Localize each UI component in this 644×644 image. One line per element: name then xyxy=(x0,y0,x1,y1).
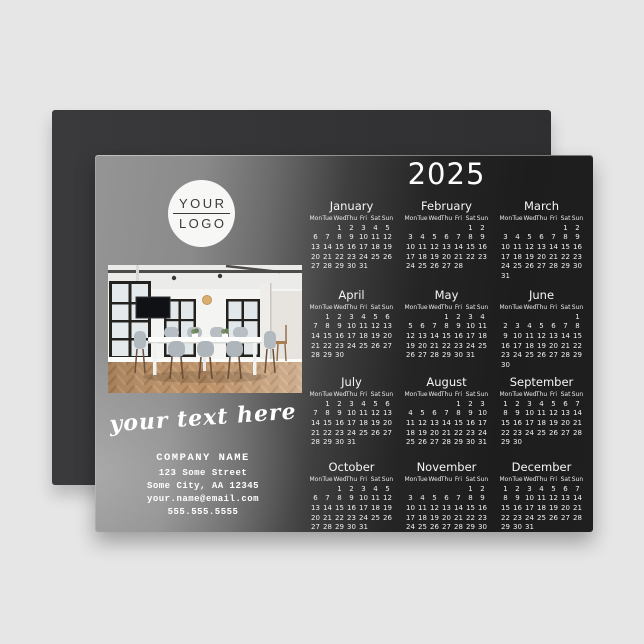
date-cell: 21 xyxy=(453,253,465,263)
date-cell: 29 xyxy=(334,262,346,272)
date-cell: 18 xyxy=(477,332,489,342)
date-cell: 23 xyxy=(334,342,346,352)
date-cell: 9 xyxy=(465,409,477,419)
date-cell: 18 xyxy=(536,504,548,514)
month-title: January xyxy=(310,200,394,213)
day-header: Sun xyxy=(477,390,489,400)
date-cell: 10 xyxy=(346,322,358,332)
date-cell: 6 xyxy=(382,313,394,323)
date-cell: 21 xyxy=(572,419,584,429)
date-cell: 3 xyxy=(346,313,358,323)
date-cell: 24 xyxy=(500,262,512,272)
date-cell: 30 xyxy=(512,438,524,448)
date-cell: 12 xyxy=(548,409,560,419)
date-cell: 11 xyxy=(358,322,370,332)
date-cell: 14 xyxy=(560,332,572,342)
day-header: Mon xyxy=(405,214,417,224)
day-header: Tue xyxy=(512,475,524,485)
date-cell: 1 xyxy=(453,400,465,410)
day-header: Mon xyxy=(310,475,322,485)
date-cell: 24 xyxy=(346,342,358,352)
month-september: SeptemberMonTueWedThuFriSatSun1234567891… xyxy=(494,376,589,461)
day-header: Wed xyxy=(524,475,536,485)
date-cell: 15 xyxy=(441,332,453,342)
date-cell: 8 xyxy=(441,322,453,332)
date-cell: 16 xyxy=(572,243,584,253)
date-cell: 30 xyxy=(512,523,524,533)
empty-cell xyxy=(524,313,536,323)
date-cell: 22 xyxy=(322,342,334,352)
date-cell: 25 xyxy=(370,514,382,524)
date-cell: 18 xyxy=(358,419,370,429)
day-header: Sun xyxy=(382,214,394,224)
date-cell: 5 xyxy=(382,224,394,234)
date-cell: 17 xyxy=(346,332,358,342)
date-cell: 16 xyxy=(512,504,524,514)
date-cell: 3 xyxy=(524,485,536,495)
date-cell: 10 xyxy=(477,409,489,419)
month-days: MonTueWedThuFriSatSun1234567891011121314… xyxy=(405,303,489,361)
date-cell: 27 xyxy=(441,262,453,272)
date-cell: 22 xyxy=(572,342,584,352)
date-cell: 17 xyxy=(405,514,417,524)
day-header: Fri xyxy=(453,475,465,485)
date-cell: 24 xyxy=(465,342,477,352)
date-cell: 10 xyxy=(524,409,536,419)
date-cell: 17 xyxy=(358,504,370,514)
product-mockup-background: YOUR LOGO xyxy=(0,0,644,644)
day-header: Sat xyxy=(465,303,477,313)
date-cell: 13 xyxy=(441,243,453,253)
year-title: 2025 xyxy=(304,157,589,191)
date-cell: 5 xyxy=(536,322,548,332)
date-cell: 2 xyxy=(477,485,489,495)
date-cell: 26 xyxy=(524,262,536,272)
date-cell: 17 xyxy=(358,243,370,253)
date-cell: 20 xyxy=(310,253,322,263)
date-cell: 2 xyxy=(512,400,524,410)
day-header: Sat xyxy=(560,475,572,485)
date-cell: 15 xyxy=(572,332,584,342)
date-cell: 7 xyxy=(572,400,584,410)
day-header: Thu xyxy=(441,214,453,224)
date-cell: 18 xyxy=(370,243,382,253)
day-header: Sun xyxy=(572,475,584,485)
tagline-script: your text here xyxy=(102,398,303,438)
date-cell: 4 xyxy=(358,400,370,410)
month-february: FebruaryMonTueWedThuFriSatSun12345678910… xyxy=(399,200,494,289)
date-cell: 5 xyxy=(548,485,560,495)
date-cell: 11 xyxy=(370,494,382,504)
date-cell: 9 xyxy=(572,233,584,243)
date-cell: 20 xyxy=(536,253,548,263)
date-cell: 15 xyxy=(500,504,512,514)
date-cell: 16 xyxy=(465,419,477,429)
date-cell: 6 xyxy=(429,409,441,419)
date-cell: 25 xyxy=(358,342,370,352)
date-cell: 19 xyxy=(548,419,560,429)
day-header: Tue xyxy=(512,214,524,224)
date-cell: 4 xyxy=(405,409,417,419)
date-cell: 10 xyxy=(346,409,358,419)
date-cell: 9 xyxy=(512,494,524,504)
date-cell: 11 xyxy=(417,504,429,514)
date-cell: 22 xyxy=(322,429,334,439)
date-cell: 28 xyxy=(310,351,322,361)
date-cell: 12 xyxy=(524,243,536,253)
date-cell: 11 xyxy=(524,332,536,342)
day-header: Fri xyxy=(548,303,560,313)
day-header: Fri xyxy=(548,475,560,485)
empty-cell xyxy=(405,224,417,234)
date-cell: 14 xyxy=(453,504,465,514)
empty-cell xyxy=(405,485,417,495)
date-cell: 14 xyxy=(572,494,584,504)
date-cell: 23 xyxy=(465,429,477,439)
date-cell: 19 xyxy=(429,514,441,524)
date-cell: 7 xyxy=(310,322,322,332)
date-cell: 19 xyxy=(417,429,429,439)
date-cell: 8 xyxy=(500,494,512,504)
date-cell: 6 xyxy=(310,233,322,243)
month-april: AprilMonTueWedThuFriSatSun12345678910111… xyxy=(304,289,399,376)
date-cell: 22 xyxy=(465,514,477,524)
date-cell: 10 xyxy=(405,243,417,253)
date-cell: 11 xyxy=(512,243,524,253)
date-cell: 23 xyxy=(453,342,465,352)
date-cell: 30 xyxy=(572,262,584,272)
month-title: July xyxy=(310,376,394,389)
day-header: Tue xyxy=(417,390,429,400)
date-cell: 21 xyxy=(310,429,322,439)
date-cell: 3 xyxy=(477,400,489,410)
date-cell: 1 xyxy=(322,400,334,410)
date-cell: 24 xyxy=(512,351,524,361)
day-header: Thu xyxy=(441,475,453,485)
date-cell: 18 xyxy=(512,253,524,263)
date-cell: 18 xyxy=(524,342,536,352)
date-cell: 19 xyxy=(429,253,441,263)
date-cell: 9 xyxy=(477,494,489,504)
date-cell: 7 xyxy=(572,485,584,495)
date-cell: 5 xyxy=(524,233,536,243)
date-cell: 5 xyxy=(382,485,394,495)
date-cell: 31 xyxy=(358,523,370,533)
month-june: JuneMonTueWedThuFriSatSun123456789101112… xyxy=(494,289,589,376)
date-cell: 25 xyxy=(417,523,429,533)
day-header: Wed xyxy=(429,475,441,485)
date-cell: 21 xyxy=(322,253,334,263)
date-cell: 13 xyxy=(382,322,394,332)
date-cell: 7 xyxy=(322,233,334,243)
empty-cell xyxy=(536,313,548,323)
date-cell: 26 xyxy=(370,429,382,439)
date-cell: 24 xyxy=(346,429,358,439)
date-cell: 18 xyxy=(405,429,417,439)
month-days: MonTueWedThuFriSatSun1234567891011121314… xyxy=(500,303,584,371)
date-cell: 4 xyxy=(358,313,370,323)
date-cell: 27 xyxy=(310,262,322,272)
date-cell: 18 xyxy=(358,332,370,342)
date-cell: 25 xyxy=(358,429,370,439)
date-cell: 9 xyxy=(500,332,512,342)
day-header: Fri xyxy=(358,475,370,485)
day-header: Wed xyxy=(334,475,346,485)
date-cell: 5 xyxy=(370,313,382,323)
date-cell: 15 xyxy=(334,504,346,514)
date-cell: 13 xyxy=(310,504,322,514)
day-header: Fri xyxy=(358,390,370,400)
date-cell: 27 xyxy=(310,523,322,533)
date-cell: 1 xyxy=(441,313,453,323)
date-cell: 12 xyxy=(382,494,394,504)
empty-cell xyxy=(429,313,441,323)
date-cell: 12 xyxy=(536,332,548,342)
date-cell: 22 xyxy=(560,253,572,263)
date-cell: 3 xyxy=(358,485,370,495)
date-cell: 2 xyxy=(500,322,512,332)
date-cell: 29 xyxy=(465,523,477,533)
date-cell: 8 xyxy=(465,233,477,243)
day-header: Sat xyxy=(370,475,382,485)
date-cell: 26 xyxy=(382,514,394,524)
day-header: Sat xyxy=(465,214,477,224)
date-cell: 26 xyxy=(548,429,560,439)
date-cell: 5 xyxy=(429,494,441,504)
empty-cell xyxy=(512,313,524,323)
date-cell: 1 xyxy=(572,313,584,323)
empty-cell xyxy=(310,313,322,323)
date-cell: 7 xyxy=(310,409,322,419)
date-cell: 3 xyxy=(346,400,358,410)
day-header: Mon xyxy=(500,303,512,313)
day-header: Mon xyxy=(405,390,417,400)
date-cell: 28 xyxy=(441,438,453,448)
month-title: May xyxy=(405,289,489,302)
day-header: Mon xyxy=(500,214,512,224)
date-cell: 22 xyxy=(334,253,346,263)
day-header: Mon xyxy=(310,390,322,400)
day-header: Wed xyxy=(524,214,536,224)
date-cell: 11 xyxy=(358,409,370,419)
empty-cell xyxy=(417,224,429,234)
date-cell: 6 xyxy=(310,494,322,504)
empty-cell xyxy=(453,224,465,234)
date-cell: 30 xyxy=(346,262,358,272)
date-cell: 13 xyxy=(560,409,572,419)
date-cell: 23 xyxy=(346,514,358,524)
date-cell: 20 xyxy=(548,342,560,352)
date-cell: 10 xyxy=(358,494,370,504)
date-cell: 4 xyxy=(417,494,429,504)
day-header: Tue xyxy=(417,475,429,485)
date-cell: 1 xyxy=(465,485,477,495)
month-days: MonTueWedThuFriSatSun1234567891011121314… xyxy=(310,390,394,448)
day-header: Mon xyxy=(500,390,512,400)
month-august: AugustMonTueWedThuFriSatSun1234567891011… xyxy=(399,376,494,461)
calendar-magnet-card: YOUR LOGO xyxy=(95,155,593,532)
empty-cell xyxy=(441,224,453,234)
date-cell: 23 xyxy=(500,351,512,361)
date-cell: 3 xyxy=(500,233,512,243)
contact-block: COMPANY NAME 123 Some Street Some City, … xyxy=(102,452,304,519)
date-cell: 16 xyxy=(477,504,489,514)
empty-cell xyxy=(417,313,429,323)
date-cell: 12 xyxy=(370,409,382,419)
date-cell: 4 xyxy=(417,233,429,243)
date-cell: 23 xyxy=(572,253,584,263)
day-header: Fri xyxy=(548,214,560,224)
date-cell: 22 xyxy=(500,514,512,524)
date-cell: 12 xyxy=(429,243,441,253)
date-cell: 29 xyxy=(572,351,584,361)
date-cell: 13 xyxy=(536,243,548,253)
date-cell: 1 xyxy=(465,224,477,234)
date-cell: 8 xyxy=(322,409,334,419)
date-cell: 18 xyxy=(417,514,429,524)
date-cell: 12 xyxy=(548,494,560,504)
day-header: Fri xyxy=(453,390,465,400)
date-cell: 21 xyxy=(548,253,560,263)
date-cell: 24 xyxy=(405,262,417,272)
date-cell: 19 xyxy=(536,342,548,352)
date-cell: 2 xyxy=(465,400,477,410)
date-cell: 2 xyxy=(572,224,584,234)
date-cell: 23 xyxy=(334,429,346,439)
month-days: MonTueWedThuFriSatSun1234567891011121314… xyxy=(500,475,584,533)
date-cell: 19 xyxy=(548,504,560,514)
date-cell: 29 xyxy=(560,262,572,272)
day-header: Wed xyxy=(429,390,441,400)
day-header: Fri xyxy=(453,303,465,313)
empty-cell xyxy=(405,400,417,410)
date-cell: 27 xyxy=(441,523,453,533)
date-cell: 20 xyxy=(429,429,441,439)
date-cell: 23 xyxy=(477,253,489,263)
date-cell: 14 xyxy=(572,409,584,419)
date-cell: 20 xyxy=(382,419,394,429)
date-cell: 8 xyxy=(334,494,346,504)
date-cell: 21 xyxy=(322,514,334,524)
date-cell: 17 xyxy=(512,342,524,352)
month-days: MonTueWedThuFriSatSun1234567891011121314… xyxy=(405,214,489,272)
day-header: Fri xyxy=(358,214,370,224)
month-december: DecemberMonTueWedThuFriSatSun12345678910… xyxy=(494,461,589,533)
date-cell: 2 xyxy=(512,485,524,495)
day-header: Sat xyxy=(560,214,572,224)
date-cell: 9 xyxy=(346,233,358,243)
date-cell: 28 xyxy=(453,262,465,272)
empty-cell xyxy=(441,485,453,495)
day-header: Sat xyxy=(370,214,382,224)
date-cell: 16 xyxy=(334,332,346,342)
date-cell: 28 xyxy=(429,351,441,361)
date-cell: 25 xyxy=(417,262,429,272)
day-header: Sat xyxy=(370,390,382,400)
date-cell: 15 xyxy=(453,419,465,429)
day-header: Fri xyxy=(358,303,370,313)
date-cell: 8 xyxy=(334,233,346,243)
date-cell: 6 xyxy=(417,322,429,332)
month-days: MonTueWedThuFriSatSun1234567891011121314… xyxy=(405,475,489,533)
date-cell: 17 xyxy=(477,419,489,429)
date-cell: 19 xyxy=(370,332,382,342)
date-cell: 18 xyxy=(536,419,548,429)
date-cell: 7 xyxy=(322,494,334,504)
logo-text-top: YOUR xyxy=(173,196,229,214)
date-cell: 9 xyxy=(346,494,358,504)
month-title: August xyxy=(405,376,489,389)
date-cell: 8 xyxy=(465,494,477,504)
date-cell: 27 xyxy=(382,342,394,352)
day-header: Sat xyxy=(465,390,477,400)
empty-cell xyxy=(512,224,524,234)
empty-cell xyxy=(548,313,560,323)
day-header: Sat xyxy=(465,475,477,485)
date-cell: 31 xyxy=(358,262,370,272)
date-cell: 27 xyxy=(429,438,441,448)
date-cell: 27 xyxy=(560,429,572,439)
date-cell: 16 xyxy=(500,342,512,352)
date-cell: 19 xyxy=(524,253,536,263)
date-cell: 10 xyxy=(465,322,477,332)
date-cell: 31 xyxy=(477,438,489,448)
date-cell: 1 xyxy=(334,485,346,495)
date-cell: 14 xyxy=(310,332,322,342)
date-cell: 5 xyxy=(548,400,560,410)
month-days: MonTueWedThuFriSatSun1234567891011121314… xyxy=(500,390,584,448)
date-cell: 26 xyxy=(429,262,441,272)
address-line-1: 123 Some Street xyxy=(102,467,304,480)
date-cell: 9 xyxy=(512,409,524,419)
date-cell: 3 xyxy=(405,494,417,504)
month-title: June xyxy=(500,289,584,302)
date-cell: 6 xyxy=(382,400,394,410)
day-header: Thu xyxy=(441,390,453,400)
day-header: Fri xyxy=(453,214,465,224)
day-header: Sun xyxy=(382,303,394,313)
month-days: MonTueWedThuFriSatSun1234567891011121314… xyxy=(500,214,584,282)
day-header: Mon xyxy=(310,303,322,313)
date-cell: 7 xyxy=(429,322,441,332)
date-cell: 15 xyxy=(465,243,477,253)
address-line-2: Some City, AA 12345 xyxy=(102,480,304,493)
date-cell: 28 xyxy=(322,523,334,533)
date-cell: 3 xyxy=(524,400,536,410)
day-header: Thu xyxy=(346,390,358,400)
date-cell: 12 xyxy=(370,322,382,332)
date-cell: 2 xyxy=(477,224,489,234)
company-name: COMPANY NAME xyxy=(102,452,304,464)
day-header: Tue xyxy=(417,303,429,313)
date-cell: 7 xyxy=(453,233,465,243)
date-cell: 14 xyxy=(310,419,322,429)
day-header: Sun xyxy=(477,303,489,313)
date-cell: 20 xyxy=(417,342,429,352)
month-title: September xyxy=(500,376,584,389)
date-cell: 22 xyxy=(453,429,465,439)
date-cell: 8 xyxy=(572,322,584,332)
month-days: MonTueWedThuFriSatSun1234567891011121314… xyxy=(405,390,489,448)
day-header: Sat xyxy=(560,303,572,313)
date-cell: 7 xyxy=(441,409,453,419)
date-cell: 11 xyxy=(417,243,429,253)
date-cell: 12 xyxy=(405,332,417,342)
empty-cell xyxy=(441,400,453,410)
month-days: MonTueWedThuFriSatSun1234567891011121314… xyxy=(310,303,394,361)
date-cell: 19 xyxy=(370,419,382,429)
date-cell: 26 xyxy=(429,523,441,533)
